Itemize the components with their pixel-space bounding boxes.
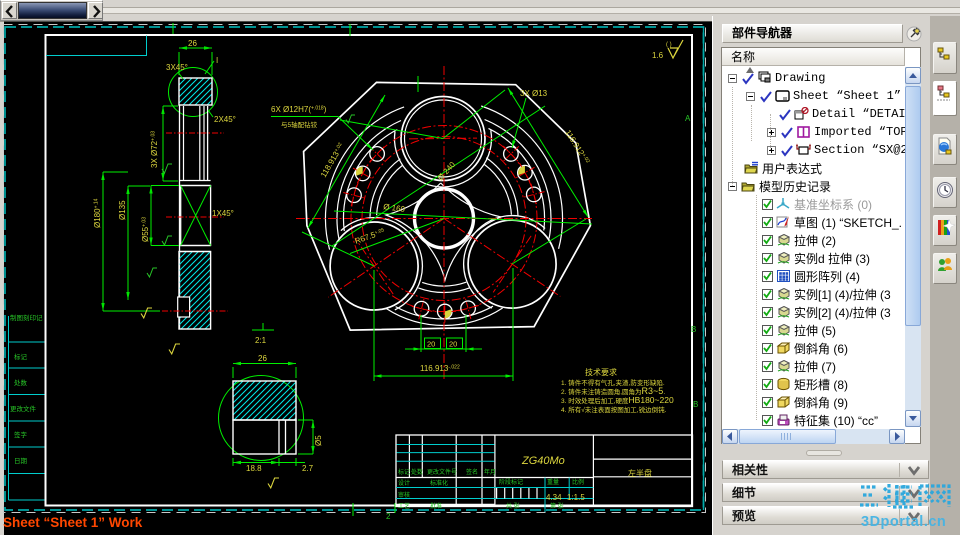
svg-text:审核: 审核 <box>398 491 410 499</box>
svg-text:更改文件号: 更改文件号 <box>427 468 457 476</box>
svg-text:1:1.5: 1:1.5 <box>567 493 585 502</box>
svg-text:比例: 比例 <box>572 478 584 486</box>
svg-text:标准化: 标准化 <box>430 479 448 487</box>
svg-text:与5轴配钻铰: 与5轴配钻铰 <box>281 120 318 129</box>
svg-text:年月: 年月 <box>484 468 496 476</box>
svg-text:1X45°: 1X45° <box>212 209 234 218</box>
svg-text:I: I <box>216 56 218 65</box>
svg-text:18.8: 18.8 <box>246 464 262 473</box>
svg-text:2.7: 2.7 <box>302 464 314 473</box>
svg-text:签名: 签名 <box>466 468 478 476</box>
svg-text:3X Ø13: 3X Ø13 <box>520 89 548 98</box>
svg-text:工艺: 工艺 <box>398 502 410 510</box>
svg-text:4.34: 4.34 <box>546 493 562 502</box>
svg-text:更改文件: 更改文件 <box>10 404 37 413</box>
svg-text:标记: 标记 <box>14 352 28 361</box>
svg-text:Ø135: Ø135 <box>118 200 127 220</box>
svg-text:共 张: 共 张 <box>506 502 520 510</box>
svg-text:技术要求: 技术要求 <box>585 367 617 377</box>
svg-text:批准: 批准 <box>430 502 442 510</box>
svg-text:处数: 处数 <box>14 378 28 387</box>
svg-text:20: 20 <box>427 340 435 349</box>
svg-text:3Dportal.cn: 3Dportal.cn <box>861 514 946 530</box>
svg-text:左半盘: 左半盘 <box>628 468 652 478</box>
svg-text:日期: 日期 <box>14 457 28 465</box>
svg-text:ZG40Mo: ZG40Mo <box>521 455 565 467</box>
svg-text:20: 20 <box>449 340 457 349</box>
svg-text:Sheet “Sheet 1” Work: Sheet “Sheet 1” Work <box>3 515 143 530</box>
svg-text:标记: 标记 <box>398 468 410 476</box>
svg-text:A: A <box>685 114 691 123</box>
svg-text:B: B <box>691 325 696 334</box>
svg-text:签字: 签字 <box>14 430 28 439</box>
svg-text:第 张: 第 张 <box>550 502 564 510</box>
svg-text:2:1: 2:1 <box>255 336 267 345</box>
svg-text:制图刻印记: 制图刻印记 <box>10 313 43 322</box>
svg-text:4. 所有√未注表面按图加工,锐边倒钝.: 4. 所有√未注表面按图加工,锐边倒钝. <box>561 405 667 414</box>
svg-text:26: 26 <box>188 39 197 48</box>
svg-text:处数: 处数 <box>411 468 423 476</box>
svg-text:设计: 设计 <box>398 479 410 487</box>
svg-text:2X45°: 2X45° <box>214 115 236 124</box>
svg-text:3X45°: 3X45° <box>166 63 188 72</box>
svg-text:Ø5: Ø5 <box>314 435 323 446</box>
svg-text:26: 26 <box>258 354 267 363</box>
svg-text:重量: 重量 <box>547 478 559 486</box>
svg-text:( ): ( ) <box>666 42 672 48</box>
svg-text:B: B <box>693 400 698 409</box>
svg-text:1.6: 1.6 <box>652 51 664 60</box>
svg-text:2: 2 <box>386 512 391 521</box>
svg-text:阶段标记: 阶段标记 <box>499 478 523 486</box>
